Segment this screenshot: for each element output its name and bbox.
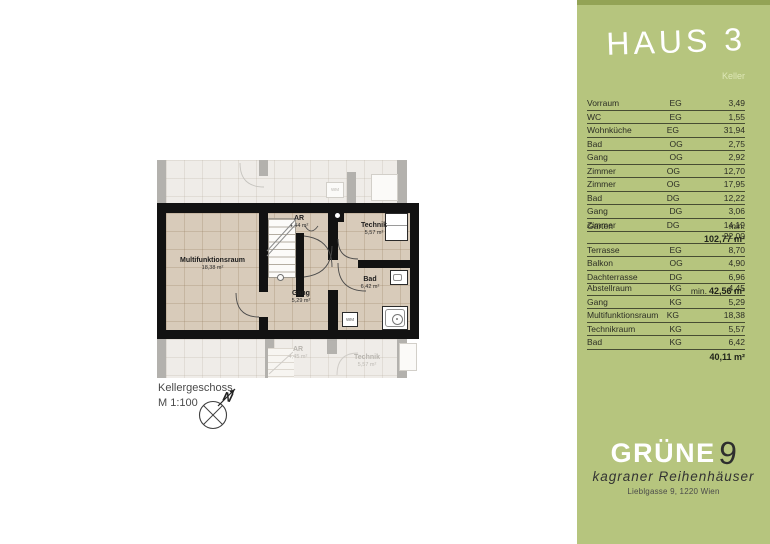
row-name: Dachterrasse <box>587 272 670 282</box>
table-row: GangOG2,92 <box>587 151 745 165</box>
row-name: Terrasse <box>587 245 670 255</box>
row-name: Bad <box>587 139 670 149</box>
brand-wordmark: GRÜNE9 <box>577 438 770 468</box>
row-area: 12,70 <box>724 166 745 176</box>
page: WM <box>0 0 770 544</box>
row-area: 4,90 <box>728 258 745 268</box>
row-floor: OG <box>667 179 724 189</box>
row-name: Abstellraum <box>587 283 670 293</box>
row-floor: DG <box>670 206 729 216</box>
table-row: VorraumEG3,49 <box>587 97 745 111</box>
brand-address: Lieblgasse 9, 1220 Wien <box>577 487 770 496</box>
floor-subtitle: Keller <box>577 71 745 81</box>
row-name: Gang <box>587 297 670 307</box>
row-name: Gang <box>587 152 670 162</box>
table-row: BadDG12,22 <box>587 192 745 206</box>
row-area: 3,49 <box>728 98 745 108</box>
row-name: Balkon <box>587 258 670 268</box>
table-row: WCEG1,55 <box>587 111 745 125</box>
row-name: Wohnküche <box>587 125 667 135</box>
basement-table: AbstellraumKG4,45 GangKG5,29 Multifunkti… <box>587 282 745 362</box>
table-row: BadKG6,42 <box>587 336 745 350</box>
row-name: Zimmer <box>587 179 667 189</box>
row-area: 5,57 <box>728 324 745 334</box>
row-area: 8,70 <box>728 245 745 255</box>
row-floor: OG <box>670 258 729 268</box>
row-name: Multifunktionsraum <box>587 310 667 320</box>
row-area: 2,75 <box>728 139 745 149</box>
row-name: Garten <box>587 221 667 231</box>
row-floor: EG <box>670 98 729 108</box>
row-floor: KG <box>670 283 729 293</box>
info-panel: HAUS 3 Keller VorraumEG3,49 WCEG1,55 Woh… <box>577 0 770 544</box>
door-arcs <box>155 160 421 378</box>
row-name: WC <box>587 112 670 122</box>
row-area: 1,55 <box>728 112 745 122</box>
row-area: 6,96 <box>728 272 745 282</box>
row-floor: DG <box>667 193 724 203</box>
brand-logo: GRÜNE9 kagraner Reihenhäuser Lieblgasse … <box>577 438 770 496</box>
row-area: 5,29 <box>728 297 745 307</box>
row-floor: OG <box>670 139 729 149</box>
brand-tagline: kagraner Reihenhäuser <box>577 469 770 484</box>
row-area: 6,42 <box>728 337 745 347</box>
row-name: Gang <box>587 206 670 216</box>
row-area: min. 22,00 <box>724 221 745 241</box>
floor-plan: WM <box>155 160 421 378</box>
row-floor: DG <box>670 272 729 282</box>
row-name: Vorraum <box>587 98 670 108</box>
table-row: WohnkücheEG31,94 <box>587 124 745 138</box>
row-area: 31,94 <box>724 125 745 135</box>
row-floor: KG <box>670 297 729 307</box>
north-compass-icon: N <box>190 383 250 437</box>
table-row: AbstellraumKG4,45 <box>587 282 745 296</box>
row-floor: EG <box>670 112 729 122</box>
row-area: 4,45 <box>728 283 745 293</box>
row-floor: OG <box>667 166 724 176</box>
table-row: ZimmerOG12,70 <box>587 165 745 179</box>
row-floor: EG <box>667 125 724 135</box>
row-name: Bad <box>587 337 670 347</box>
north-label: N <box>221 389 234 406</box>
row-name: Zimmer <box>587 166 667 176</box>
table-row: BalkonOG4,90 <box>587 257 745 271</box>
basement-total: 40,11 m² <box>587 350 745 362</box>
table-row: TerrasseEG8,70 <box>587 244 745 258</box>
table-row: ZimmerOG17,95 <box>587 178 745 192</box>
row-area: 17,95 <box>724 179 745 189</box>
table-row: GangDG3,06 <box>587 205 745 219</box>
row-floor: KG <box>670 337 729 347</box>
row-area: 3,06 <box>728 206 745 216</box>
house-title: HAUS 3 <box>576 21 746 64</box>
table-row: BadOG2,75 <box>587 138 745 152</box>
row-floor: OG <box>670 152 729 162</box>
row-area: 12,22 <box>724 193 745 203</box>
row-area: 18,38 <box>724 310 745 320</box>
panel-top-strip <box>577 0 770 5</box>
row-floor: EG <box>670 245 729 255</box>
row-name: Bad <box>587 193 667 203</box>
row-floor: KG <box>670 324 729 334</box>
table-row: TechnikraumKG5,57 <box>587 323 745 337</box>
row-name: Technikraum <box>587 324 670 334</box>
table-row: Gartenmin. 22,00 <box>587 220 745 244</box>
table-row: MultifunktionsraumKG18,38 <box>587 309 745 323</box>
brand-name: GRÜNE <box>611 438 716 468</box>
brand-number: 9 <box>717 437 738 469</box>
row-area: 2,92 <box>728 152 745 162</box>
row-floor: KG <box>667 310 724 320</box>
table-row: GangKG5,29 <box>587 296 745 310</box>
